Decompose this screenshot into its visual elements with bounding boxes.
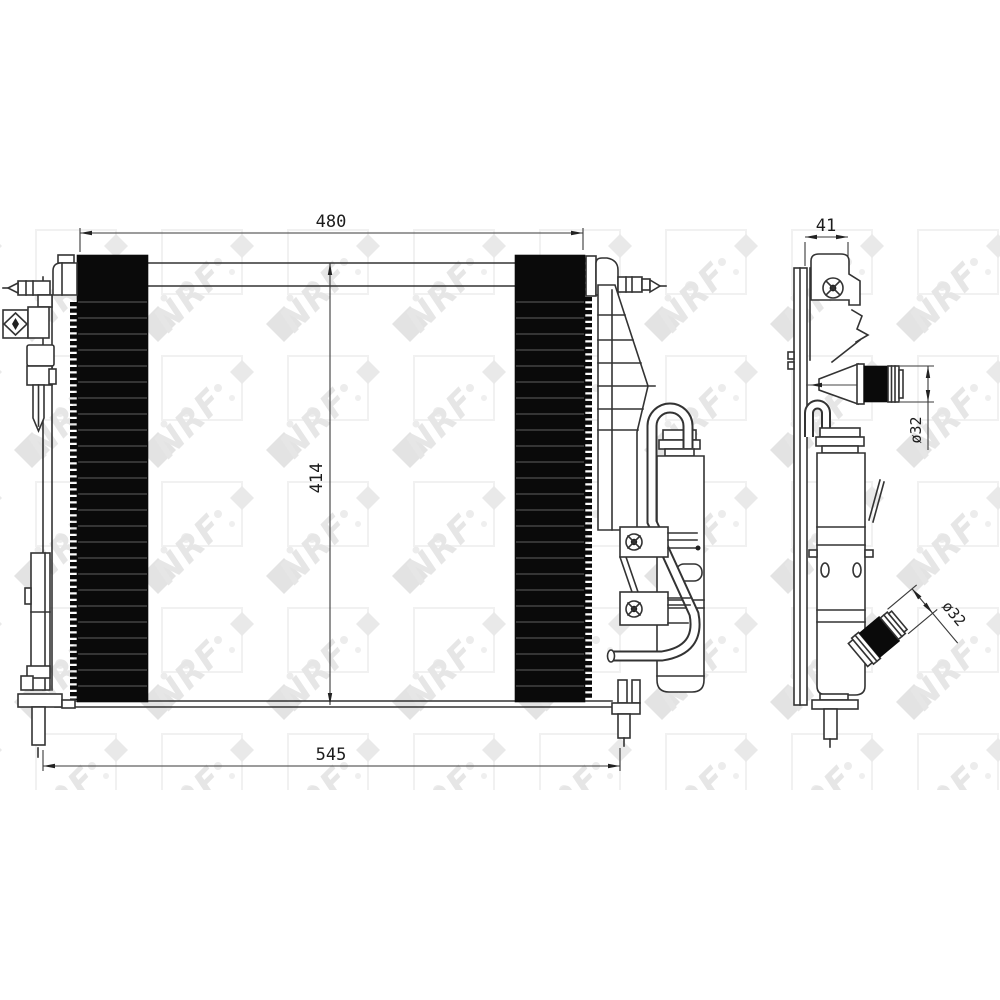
left-foot-plate (18, 694, 62, 707)
pipe-outlet-end (608, 650, 615, 662)
dim-label-depth: 41 (816, 216, 836, 236)
left-mount-pin (32, 707, 45, 745)
technical-drawing: NRF (0, 0, 1000, 1000)
right-stub-pipe (618, 277, 642, 292)
right-foot-plate (612, 703, 640, 714)
dim-label-upper-port: ø32 (907, 416, 925, 443)
drawing-canvas: NRF (0, 0, 1000, 1000)
left-core-column (74, 255, 149, 702)
right-mount-pin (618, 714, 630, 738)
side-mount-pin (824, 709, 837, 739)
dim-label-core-height: 414 (307, 463, 327, 494)
right-core-column (515, 255, 589, 702)
dim-label-core-width: 480 (316, 212, 347, 232)
dim-label-overall-width: 545 (316, 745, 347, 765)
